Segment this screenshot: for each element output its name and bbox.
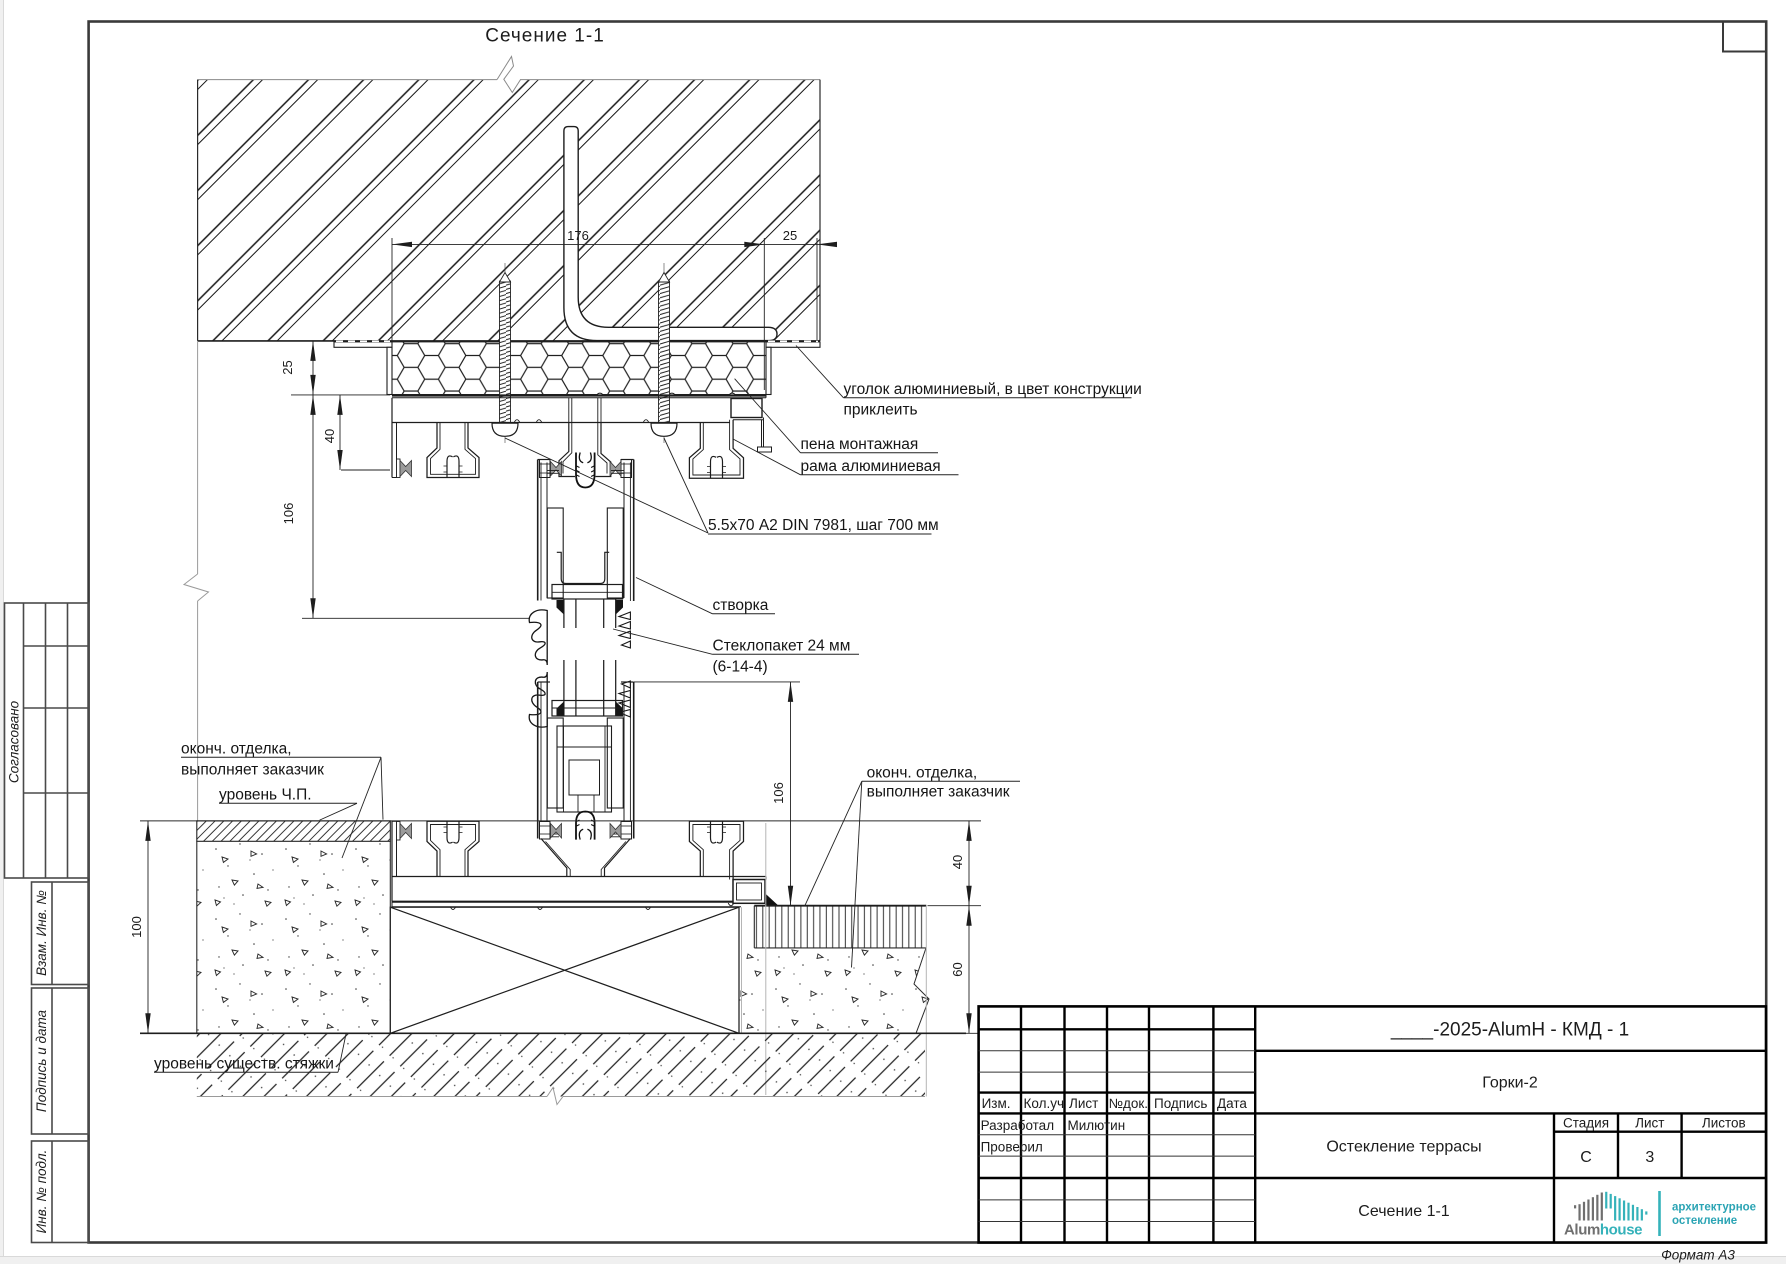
svg-text:106: 106 bbox=[281, 503, 296, 525]
svg-text:уголок алюминиевый, в цвет кон: уголок алюминиевый, в цвет конструкции bbox=[844, 381, 1142, 398]
svg-text:выполняет заказчик: выполняет заказчик bbox=[181, 762, 324, 779]
svg-text:рама алюминиевая: рама алюминиевая bbox=[801, 458, 941, 475]
svg-text:С: С bbox=[1580, 1149, 1592, 1166]
svg-text:уровень Ч.П.: уровень Ч.П. bbox=[219, 787, 312, 804]
svg-text:Листов: Листов bbox=[1702, 1115, 1746, 1130]
svg-text:25: 25 bbox=[783, 228, 797, 243]
svg-text:3: 3 bbox=[1645, 1149, 1654, 1166]
svg-text:Кол.уч: Кол.уч bbox=[1024, 1096, 1065, 1111]
svg-text:выполняет заказчик: выполняет заказчик bbox=[867, 784, 1010, 801]
svg-text:60: 60 bbox=[950, 962, 965, 976]
svg-text:Лист: Лист bbox=[1069, 1096, 1098, 1111]
svg-text:Разработал: Разработал bbox=[981, 1118, 1054, 1133]
svg-text:Дата: Дата bbox=[1217, 1096, 1247, 1111]
svg-text:Подпись: Подпись bbox=[1154, 1096, 1207, 1111]
svg-text:остекление: остекление bbox=[1672, 1215, 1737, 1227]
svg-text:оконч. отделка,: оконч. отделка, bbox=[181, 741, 292, 758]
svg-text:Подпись и дата: Подпись и дата bbox=[34, 1009, 49, 1112]
svg-text:176: 176 bbox=[567, 228, 589, 243]
svg-text:Alumhouse: Alumhouse bbox=[1564, 1222, 1642, 1239]
svg-text:Лист: Лист bbox=[1635, 1115, 1664, 1130]
svg-text:____-2025-AlumH - КМД - 1: ____-2025-AlumH - КМД - 1 bbox=[1390, 1020, 1629, 1041]
svg-text:приклеить: приклеить bbox=[844, 402, 918, 419]
svg-text:Инв. № подл.: Инв. № подл. bbox=[34, 1150, 49, 1234]
svg-text:архитектурное: архитектурное bbox=[1672, 1202, 1756, 1214]
svg-text:5.5х70 А2 DIN 7981, шаг 700 мм: 5.5х70 А2 DIN 7981, шаг 700 мм bbox=[708, 517, 939, 534]
svg-text:Стадия: Стадия bbox=[1563, 1115, 1609, 1130]
svg-text:Остекление террасы: Остекление террасы bbox=[1326, 1139, 1481, 1156]
svg-text:Горки-2: Горки-2 bbox=[1482, 1075, 1538, 1092]
svg-text:№док.: №док. bbox=[1109, 1096, 1149, 1111]
svg-text:Милютин: Милютин bbox=[1068, 1118, 1126, 1133]
svg-text:Формат А3: Формат А3 bbox=[1661, 1248, 1735, 1263]
svg-text:Стеклопакет 24 мм: Стеклопакет 24 мм bbox=[713, 638, 851, 655]
svg-text:40: 40 bbox=[322, 429, 337, 443]
svg-text:106: 106 bbox=[771, 782, 786, 804]
svg-text:Проверил: Проверил bbox=[981, 1139, 1043, 1154]
svg-text:Изм.: Изм. bbox=[982, 1096, 1011, 1111]
svg-text:40: 40 bbox=[950, 855, 965, 869]
svg-text:уровень существ. стяжки: уровень существ. стяжки bbox=[154, 1056, 334, 1073]
svg-text:(6-14-4): (6-14-4) bbox=[713, 659, 768, 676]
svg-text:створка: створка bbox=[713, 597, 769, 614]
svg-text:пена монтажная: пена монтажная bbox=[801, 436, 919, 453]
svg-text:оконч. отделка,: оконч. отделка, bbox=[867, 765, 978, 782]
svg-text:Взам. Инв. №: Взам. Инв. № bbox=[34, 890, 49, 976]
svg-text:100: 100 bbox=[129, 916, 144, 938]
svg-text:Сечение 1-1: Сечение 1-1 bbox=[1358, 1203, 1450, 1220]
svg-text:Согласовано: Согласовано bbox=[7, 700, 22, 783]
svg-text:Сечение 1-1: Сечение 1-1 bbox=[485, 26, 605, 47]
svg-text:25: 25 bbox=[280, 360, 295, 374]
